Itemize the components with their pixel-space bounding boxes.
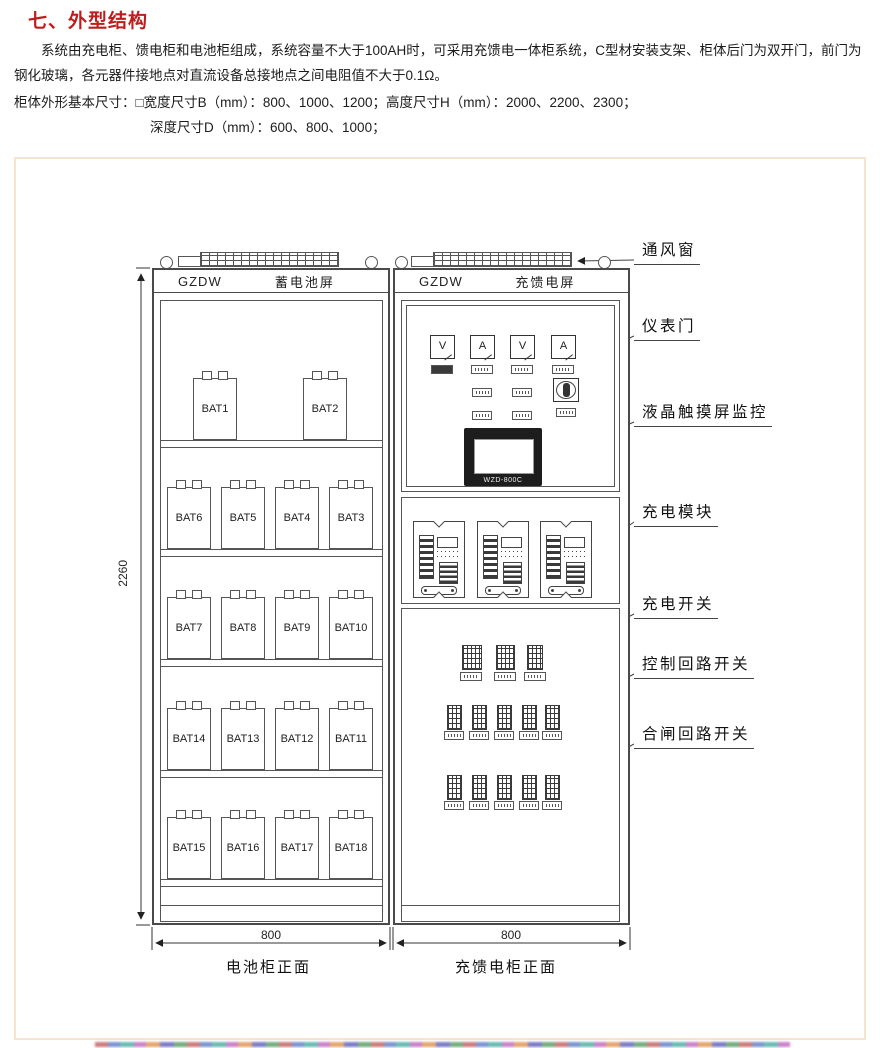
battery-cabinet-base: [160, 905, 383, 922]
meter-nameplate: [552, 365, 574, 374]
battery-shelf: [160, 659, 383, 667]
voltmeter: V: [510, 335, 535, 359]
battery-shelf: [160, 770, 383, 778]
callout-lcd: 液晶触摸屏监控: [634, 400, 772, 427]
breaker-nameplate: [444, 801, 464, 810]
battery-cell: BAT1: [193, 378, 237, 440]
battery-cell: BAT14: [167, 708, 211, 770]
dimension-spec-line1: 柜体外形基本尺寸：□宽度尺寸B（mm）：800、1000、1200；高度尺寸H（…: [14, 90, 866, 115]
vent-tab: [178, 256, 201, 267]
closing-circuit-breaker: [497, 775, 512, 800]
battery-cell: BAT15: [167, 817, 211, 879]
left-width-dimension: 800: [258, 928, 284, 942]
vent-grille-left: [200, 252, 339, 267]
rotary-switch: [553, 378, 579, 402]
meter-nameplate: [471, 365, 493, 374]
callout-closing-switch: 合闸回路开关: [634, 722, 754, 749]
lamp-nameplate: [512, 388, 532, 397]
battery-shelf: [160, 879, 383, 887]
closing-circuit-breaker: [545, 775, 560, 800]
module-leds: [501, 551, 522, 557]
breaker-nameplate: [542, 731, 562, 740]
breaker-nameplate: [519, 801, 539, 810]
control-circuit-breaker: [545, 705, 560, 730]
cabinet-header: GZDW 充馈电屏: [395, 270, 628, 293]
module-connector: [421, 586, 457, 595]
rotary-nameplate: [556, 408, 576, 417]
battery-cell: BAT16: [221, 817, 265, 879]
lcd-screen: [474, 439, 534, 474]
battery-cell: BAT7: [167, 597, 211, 659]
battery-cell: BAT9: [275, 597, 319, 659]
vent-grille-right: [433, 252, 572, 267]
charge-switch-breaker: [496, 645, 515, 670]
module-vent: [503, 562, 522, 584]
manual-page: 七、外型结构 系统由充电柜、馈电柜和电池柜组成，系统容量不大于100AH时，可采…: [0, 0, 880, 1048]
footer-artifact-strip: [95, 1042, 790, 1047]
module-vent: [566, 562, 585, 584]
battery-cell: BAT4: [275, 487, 319, 549]
vent-tab: [411, 256, 434, 267]
module-display: [564, 537, 585, 548]
body-paragraph: 系统由充电柜、馈电柜和电池柜组成，系统容量不大于100AH时，可采用充馈电一体柜…: [14, 38, 866, 88]
battery-cell: BAT10: [329, 597, 373, 659]
battery-cell: BAT17: [275, 817, 319, 879]
module-leds: [437, 551, 458, 557]
battery-cell: BAT6: [167, 487, 211, 549]
callout-charge-module: 充电模块: [634, 500, 718, 527]
closing-circuit-breaker: [522, 775, 537, 800]
height-dimension: 2260: [113, 560, 133, 587]
ammeter: A: [470, 335, 495, 359]
meter-nameplate: [431, 365, 453, 374]
module-vent: [483, 535, 498, 579]
module-display: [437, 537, 458, 548]
module-vent: [546, 535, 561, 579]
cabinet-brand: GZDW: [419, 274, 463, 289]
meter-nameplate: [511, 365, 533, 374]
callout-control-switch: 控制回路开关: [634, 652, 754, 679]
breaker-nameplate: [524, 672, 546, 681]
breaker-nameplate: [494, 801, 514, 810]
closing-circuit-breaker: [472, 775, 487, 800]
lcd-model-label: WZD-800C: [464, 477, 542, 484]
section-title: 七、外型结构: [28, 6, 148, 33]
lamp-nameplate: [472, 411, 492, 420]
right-width-dimension: 800: [498, 928, 524, 942]
lamp-nameplate: [472, 388, 492, 397]
callout-vent: 通风窗: [634, 238, 700, 265]
battery-cell: BAT8: [221, 597, 265, 659]
breaker-nameplate: [460, 672, 482, 681]
breaker-nameplate: [494, 731, 514, 740]
battery-cell: BAT5: [221, 487, 265, 549]
module-vent: [439, 562, 458, 584]
breaker-nameplate: [444, 731, 464, 740]
lamp-nameplate: [512, 411, 532, 420]
battery-cell: BAT2: [303, 378, 347, 440]
charge-module: [540, 521, 592, 598]
module-connector: [485, 586, 521, 595]
cabinet-name: 充馈电屏: [463, 272, 628, 291]
module-display: [501, 537, 522, 548]
breaker-nameplate: [469, 731, 489, 740]
control-circuit-breaker: [522, 705, 537, 730]
battery-shelf: [160, 440, 383, 448]
breaker-nameplate: [494, 672, 516, 681]
battery-shelf: [160, 549, 383, 557]
module-leds: [564, 551, 585, 557]
closing-circuit-breaker: [447, 775, 462, 800]
ammeter: A: [551, 335, 576, 359]
caption-charge-cabinet: 充馈电柜正面: [455, 956, 557, 977]
cabinet-name: 蓄电池屏: [222, 272, 388, 291]
control-circuit-breaker: [497, 705, 512, 730]
charge-module: [413, 521, 465, 598]
cabinet-header: GZDW 蓄电池屏: [154, 270, 388, 293]
module-connector: [548, 586, 584, 595]
lcd-touchscreen: WZD-800C: [464, 428, 542, 486]
charge-module: [477, 521, 529, 598]
battery-cell: BAT11: [329, 708, 373, 770]
breaker-nameplate: [542, 801, 562, 810]
dimension-spec-line2: 深度尺寸D（mm）：600、800、1000；: [150, 115, 850, 140]
control-circuit-breaker: [447, 705, 462, 730]
charge-cabinet-base: [401, 905, 620, 922]
battery-cell: BAT3: [329, 487, 373, 549]
battery-cell: BAT12: [275, 708, 319, 770]
voltmeter: V: [430, 335, 455, 359]
breaker-nameplate: [469, 801, 489, 810]
breaker-nameplate: [519, 731, 539, 740]
module-vent: [419, 535, 434, 579]
battery-cell: BAT18: [329, 817, 373, 879]
cabinet-brand: GZDW: [178, 274, 222, 289]
charge-switch-breaker: [462, 645, 482, 670]
control-circuit-breaker: [472, 705, 487, 730]
battery-cell: BAT13: [221, 708, 265, 770]
callout-charge-switch: 充电开关: [634, 592, 718, 619]
callout-meter-door: 仪表门: [634, 314, 700, 341]
caption-battery-cabinet: 电池柜正面: [226, 956, 311, 977]
charge-switch-breaker: [527, 645, 543, 670]
